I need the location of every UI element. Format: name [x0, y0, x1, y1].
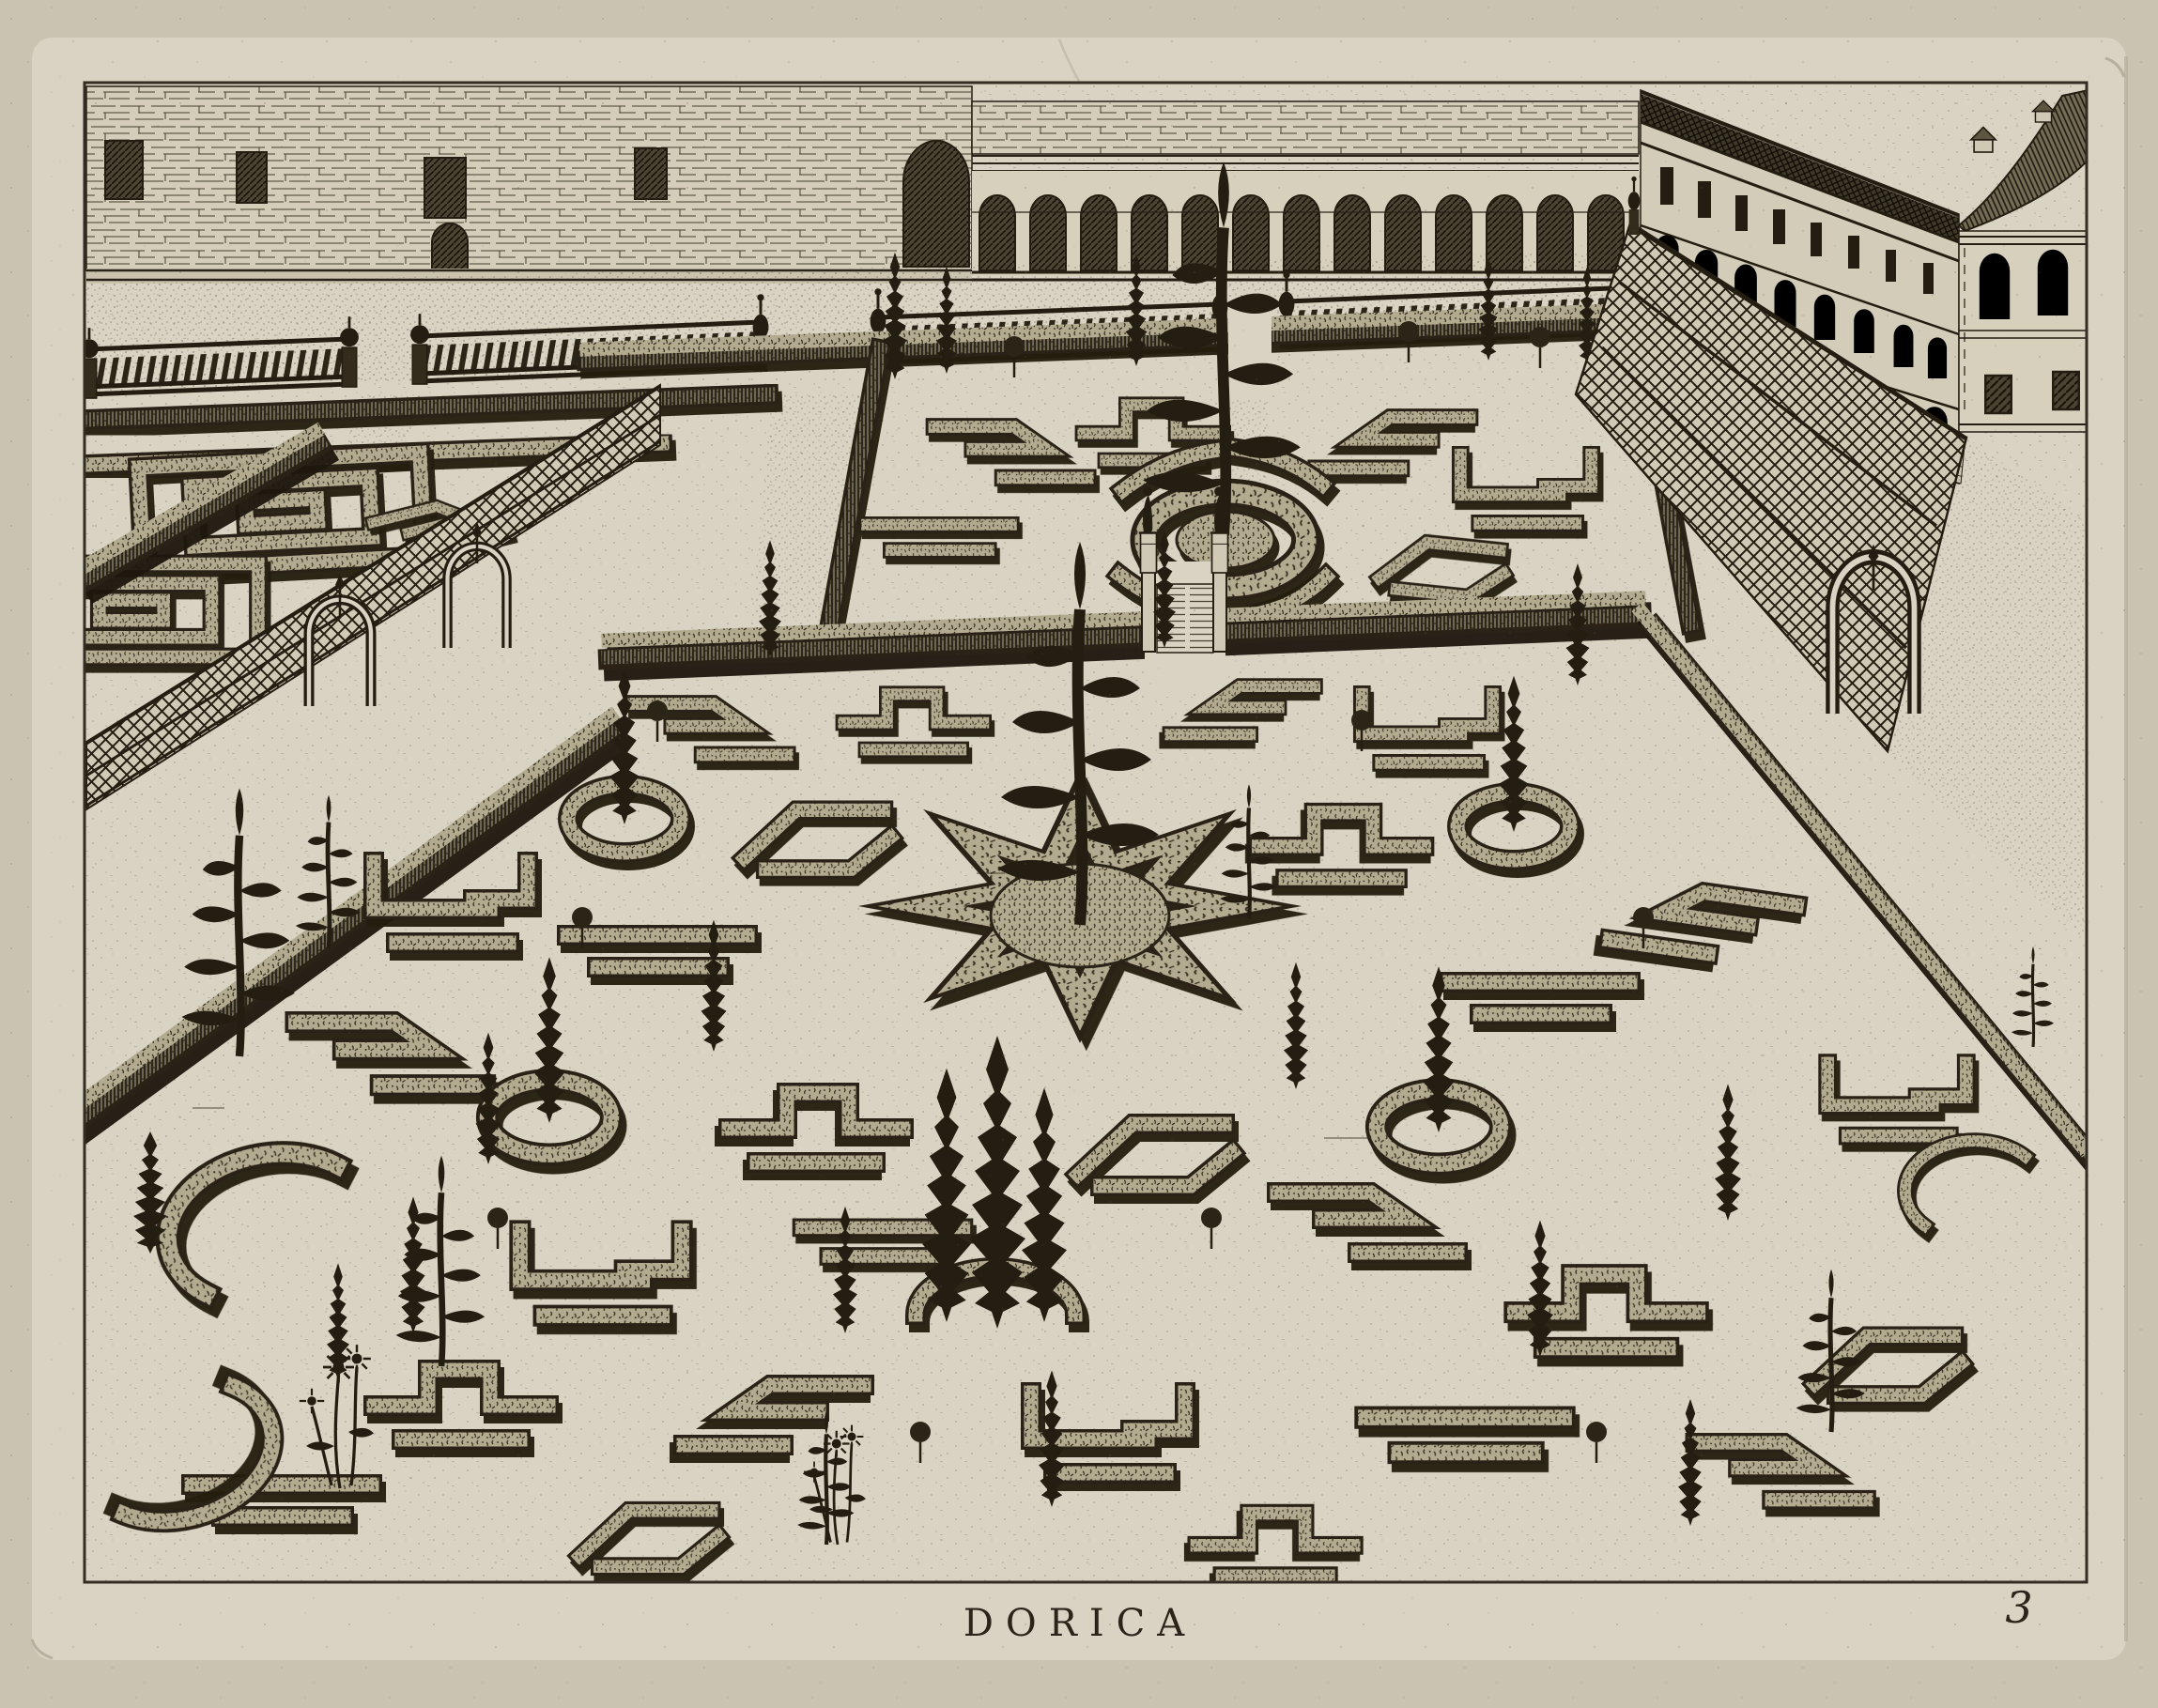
engraving-plate: DORICA 3: [0, 0, 2158, 1708]
paper-grain: [0, 0, 2158, 1708]
engraving-canvas: DORICA 3: [0, 0, 2158, 1708]
